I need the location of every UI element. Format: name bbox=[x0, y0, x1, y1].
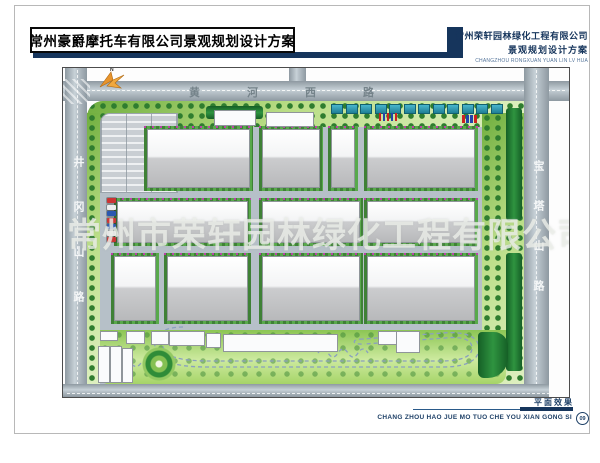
dense-tree-strip bbox=[506, 253, 522, 371]
company-subtitle: 景观规划设计方案 bbox=[428, 43, 588, 56]
blue-roof-structure bbox=[404, 104, 416, 114]
parked-car bbox=[470, 115, 473, 123]
flag-pole bbox=[387, 113, 389, 121]
blue-roof-structure bbox=[346, 104, 358, 114]
company-name: 常州荣轩园林绿化工程有限公司 bbox=[428, 29, 588, 42]
footer-pinyin: CHANG ZHOU HAO JUE MO TUO CHE YOU XIAN G… bbox=[370, 414, 572, 421]
parked-car bbox=[107, 198, 116, 203]
factory-building bbox=[364, 253, 478, 324]
aux-building bbox=[169, 331, 205, 346]
factory-building bbox=[164, 253, 251, 324]
blue-roof-structure bbox=[418, 104, 430, 114]
aux-building bbox=[214, 110, 256, 126]
road-stub-north bbox=[289, 68, 306, 81]
blue-roof-structure bbox=[331, 104, 343, 114]
building-roof bbox=[367, 256, 475, 321]
factory-building bbox=[259, 126, 323, 191]
footer-rule-thin bbox=[413, 409, 523, 410]
building-roof bbox=[114, 256, 156, 321]
blue-roof-structure bbox=[433, 104, 445, 114]
aux-building bbox=[122, 348, 133, 383]
aux-building bbox=[206, 333, 221, 348]
factory-building bbox=[364, 126, 478, 191]
site-plan-map: 黄河西路 井冈山路 宝塔山路 N 常州市荣轩园林绿化工程有限公司 bbox=[62, 67, 570, 398]
blue-roof-structure bbox=[462, 104, 474, 114]
blue-roof-structure bbox=[447, 104, 459, 114]
aux-building bbox=[266, 112, 314, 127]
page-title: 常州豪爵摩托车有限公司景观规划设计方案 bbox=[30, 30, 296, 50]
factory-building bbox=[328, 126, 358, 191]
page-number-badge: 09 bbox=[576, 412, 589, 425]
compass-label: N bbox=[110, 67, 114, 73]
road-bottom bbox=[63, 384, 549, 397]
company-info: 常州荣轩园林绿化工程有限公司 景观规划设计方案 CHANGZHOU RONGXU… bbox=[428, 29, 588, 64]
building-roof bbox=[167, 256, 248, 321]
flag-pole bbox=[395, 113, 397, 121]
building-roof bbox=[367, 129, 475, 188]
factory-building bbox=[111, 253, 159, 324]
building-roof bbox=[262, 256, 360, 321]
parked-car bbox=[466, 115, 469, 123]
aux-building bbox=[110, 346, 122, 383]
flag-pole bbox=[383, 113, 385, 121]
building-roof bbox=[262, 129, 320, 188]
flag-pole bbox=[379, 113, 381, 121]
flag-pole bbox=[391, 113, 393, 121]
aux-building bbox=[126, 331, 145, 344]
company-pinyin: CHANGZHOU RONGXUAN YUAN LIN LV HUA bbox=[428, 58, 588, 64]
aux-building bbox=[396, 331, 420, 353]
building-roof bbox=[331, 129, 355, 188]
parked-car bbox=[474, 115, 477, 123]
parked-car bbox=[462, 115, 465, 123]
factory-building bbox=[144, 126, 253, 191]
aux-building bbox=[223, 334, 338, 352]
blue-roof-structure bbox=[476, 104, 488, 114]
drawing-caption: 平面效果 bbox=[498, 397, 574, 408]
building-roof bbox=[147, 129, 250, 188]
watermark: 常州市荣轩园林绿化工程有限公司 bbox=[67, 208, 565, 257]
blue-roof-structure bbox=[360, 104, 372, 114]
north-compass-icon: N bbox=[97, 69, 127, 91]
aux-building bbox=[98, 346, 110, 383]
aux-building bbox=[100, 331, 118, 341]
page-number: 09 bbox=[579, 416, 585, 422]
crosswalk-hatch bbox=[63, 79, 90, 104]
aux-building bbox=[151, 331, 169, 345]
road-label-top: 黄河西路 bbox=[189, 84, 421, 100]
factory-building bbox=[259, 253, 363, 324]
dense-tree-strip bbox=[506, 108, 522, 220]
blue-roof-structure bbox=[491, 104, 503, 114]
title-box: 常州豪爵摩托车有限公司景观规划设计方案 bbox=[30, 27, 295, 53]
circular-tree-cluster bbox=[139, 346, 179, 382]
